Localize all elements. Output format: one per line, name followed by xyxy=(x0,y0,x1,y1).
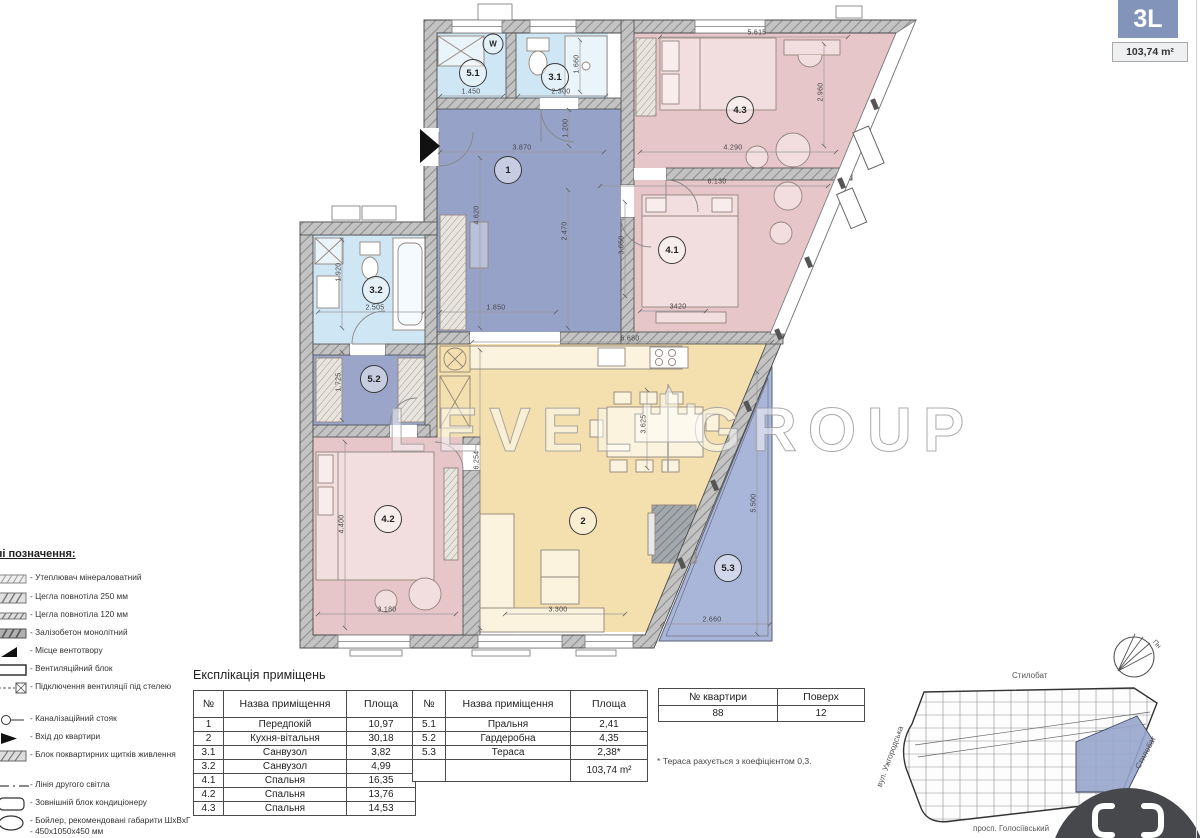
legend-item: - Бойлер, рекомендовані габарити ШхВхГ -… xyxy=(0,815,195,837)
table-row: 1Передпокій10,97 xyxy=(194,718,416,732)
sitemap-label-top: Стилобат xyxy=(1012,671,1047,680)
dim-label: 3.625 xyxy=(641,414,648,433)
legend-item: - Цегла повнотіла 120 мм xyxy=(0,609,195,623)
vent-opening-icon xyxy=(0,645,30,659)
mineral-wool-icon xyxy=(0,572,30,586)
table-row: 4.1Спальня16,35 xyxy=(194,774,416,788)
monolithic-concrete-icon xyxy=(0,627,30,641)
room-label-5-3: 5.3 xyxy=(714,554,742,582)
apartment-table: № квартири Поверх 88 12 xyxy=(658,688,865,722)
legend-item: - Вентиляційний блок xyxy=(0,663,195,677)
dim-label: 6.254 xyxy=(474,450,481,469)
ceiling-vent-icon xyxy=(0,681,30,695)
table-row: 3.2Санвузол4,99 xyxy=(194,760,416,774)
dim-label: 4.290 xyxy=(723,145,742,152)
entrance-arrow-icon xyxy=(0,731,30,745)
room-label-5-2: 5.2 xyxy=(360,365,388,393)
dim-label: 2.660 xyxy=(702,617,721,624)
explication-table-2: № Назва приміщення Площа 5.1Пральня2,41 … xyxy=(412,690,648,782)
dim-label: 2.300 xyxy=(551,89,570,96)
table-row: 2Кухня-вітальня30,18 xyxy=(194,732,416,746)
dim-label: 2.505 xyxy=(365,305,384,312)
dim-label: 5.615 xyxy=(747,30,766,37)
dim-label: 4.620 xyxy=(474,205,481,224)
dim-label: 6.680 xyxy=(620,336,639,343)
table-row: 4.2Спальня13,76 xyxy=(194,788,416,802)
legend-item: - Каналізаційний стояк xyxy=(0,713,195,727)
washer-symbol: W xyxy=(483,34,504,55)
dim-label: 6.130 xyxy=(707,179,726,186)
legend-item: - Зовнішній блок кондиціонеру xyxy=(0,797,195,811)
room-label-5-1: 5.1 xyxy=(459,59,487,87)
room-label-1: 1 xyxy=(494,156,522,184)
table-row: 5.1Пральня2,41 xyxy=(413,718,648,732)
explication-title: Експлікація приміщень xyxy=(193,668,326,682)
window-edge xyxy=(1196,0,1197,838)
room-label-4-3: 4.3 xyxy=(726,96,754,124)
room-label-4-2: 4.2 xyxy=(374,505,402,533)
legend-item: - Залізобетон монолітний xyxy=(0,627,195,641)
room-label-3-1: 3.1 xyxy=(541,63,569,91)
dim-label: 1.660 xyxy=(574,54,581,73)
dim-label: 2.470 xyxy=(562,221,569,240)
legend-title: Умовні позначення: xyxy=(0,548,76,560)
legend-item: - Підключення вентиляції під стелею xyxy=(0,681,195,695)
legend-item: - Блок поквартирних щитків живлення xyxy=(0,749,195,763)
dim-label: 1.725 xyxy=(336,372,343,391)
dim-label: 3420 xyxy=(670,304,687,311)
table-row: 5.3Тераса2,38* xyxy=(413,746,648,760)
room-label-2: 2 xyxy=(569,507,597,535)
total-row: 103,74 m² xyxy=(413,760,648,782)
dim-label: 1.920 xyxy=(336,262,343,281)
legend-item: - Місце вентотвору xyxy=(0,645,195,659)
dim-label: 2.960 xyxy=(818,82,825,101)
apartment-type-badge: 3L xyxy=(1118,0,1178,38)
dim-label: 1.850 xyxy=(486,305,505,312)
dim-label: 3.870 xyxy=(512,145,531,152)
brick-250-icon xyxy=(0,591,30,605)
dim-label: 3.180 xyxy=(377,607,396,614)
legend-item: - Вхід до квартири xyxy=(0,731,195,745)
sitemap-label-street-bottom: просп. Голосіївський xyxy=(973,824,1049,833)
total-area: 103,74 m² xyxy=(571,760,648,782)
sewer-riser-icon xyxy=(0,713,30,727)
dim-label: 4.400 xyxy=(339,514,346,533)
legend-item: - Лінія другого світла xyxy=(0,779,195,793)
dim-label: 1.450 xyxy=(461,89,480,96)
terrace-footnote: * Тераса рахується з коефіцієнтом 0,3. xyxy=(657,756,812,766)
floor-number: 12 xyxy=(778,706,865,722)
boiler-icon xyxy=(0,815,30,831)
total-area-badge: 103,74 m² xyxy=(1112,42,1188,62)
legend-item: - Цегла повнотіла 250 мм xyxy=(0,591,195,605)
dim-label: 3.050 xyxy=(619,235,626,254)
dim-label: 1.200 xyxy=(563,118,570,137)
table-row: 4.3Спальня14,53 xyxy=(194,802,416,816)
vent-block-icon xyxy=(0,663,30,677)
electrical-panel-icon xyxy=(0,749,30,763)
dim-label: 5.500 xyxy=(751,493,758,512)
floorplan-page: LEVEL GROUP 5.1 W 3.1 1 3.2 5.2 4.3 4.1 … xyxy=(0,0,1200,838)
ac-outdoor-unit-icon xyxy=(0,797,30,811)
dim-label: 3.300 xyxy=(548,607,567,614)
brick-120-icon xyxy=(0,609,30,623)
apartment-number: 88 xyxy=(659,706,778,722)
table-row: 5.2Гардеробна4,35 xyxy=(413,732,648,746)
table-row: 3.1Санвузол3,82 xyxy=(194,746,416,760)
explication-table-1: № Назва приміщення Площа 1Передпокій10,9… xyxy=(193,690,416,816)
second-light-line-icon xyxy=(0,779,30,793)
room-label-3-2: 3.2 xyxy=(362,276,390,304)
room-label-4-1: 4.1 xyxy=(658,236,686,264)
legend-item: - Утеплювач мінераловатний xyxy=(0,572,195,586)
